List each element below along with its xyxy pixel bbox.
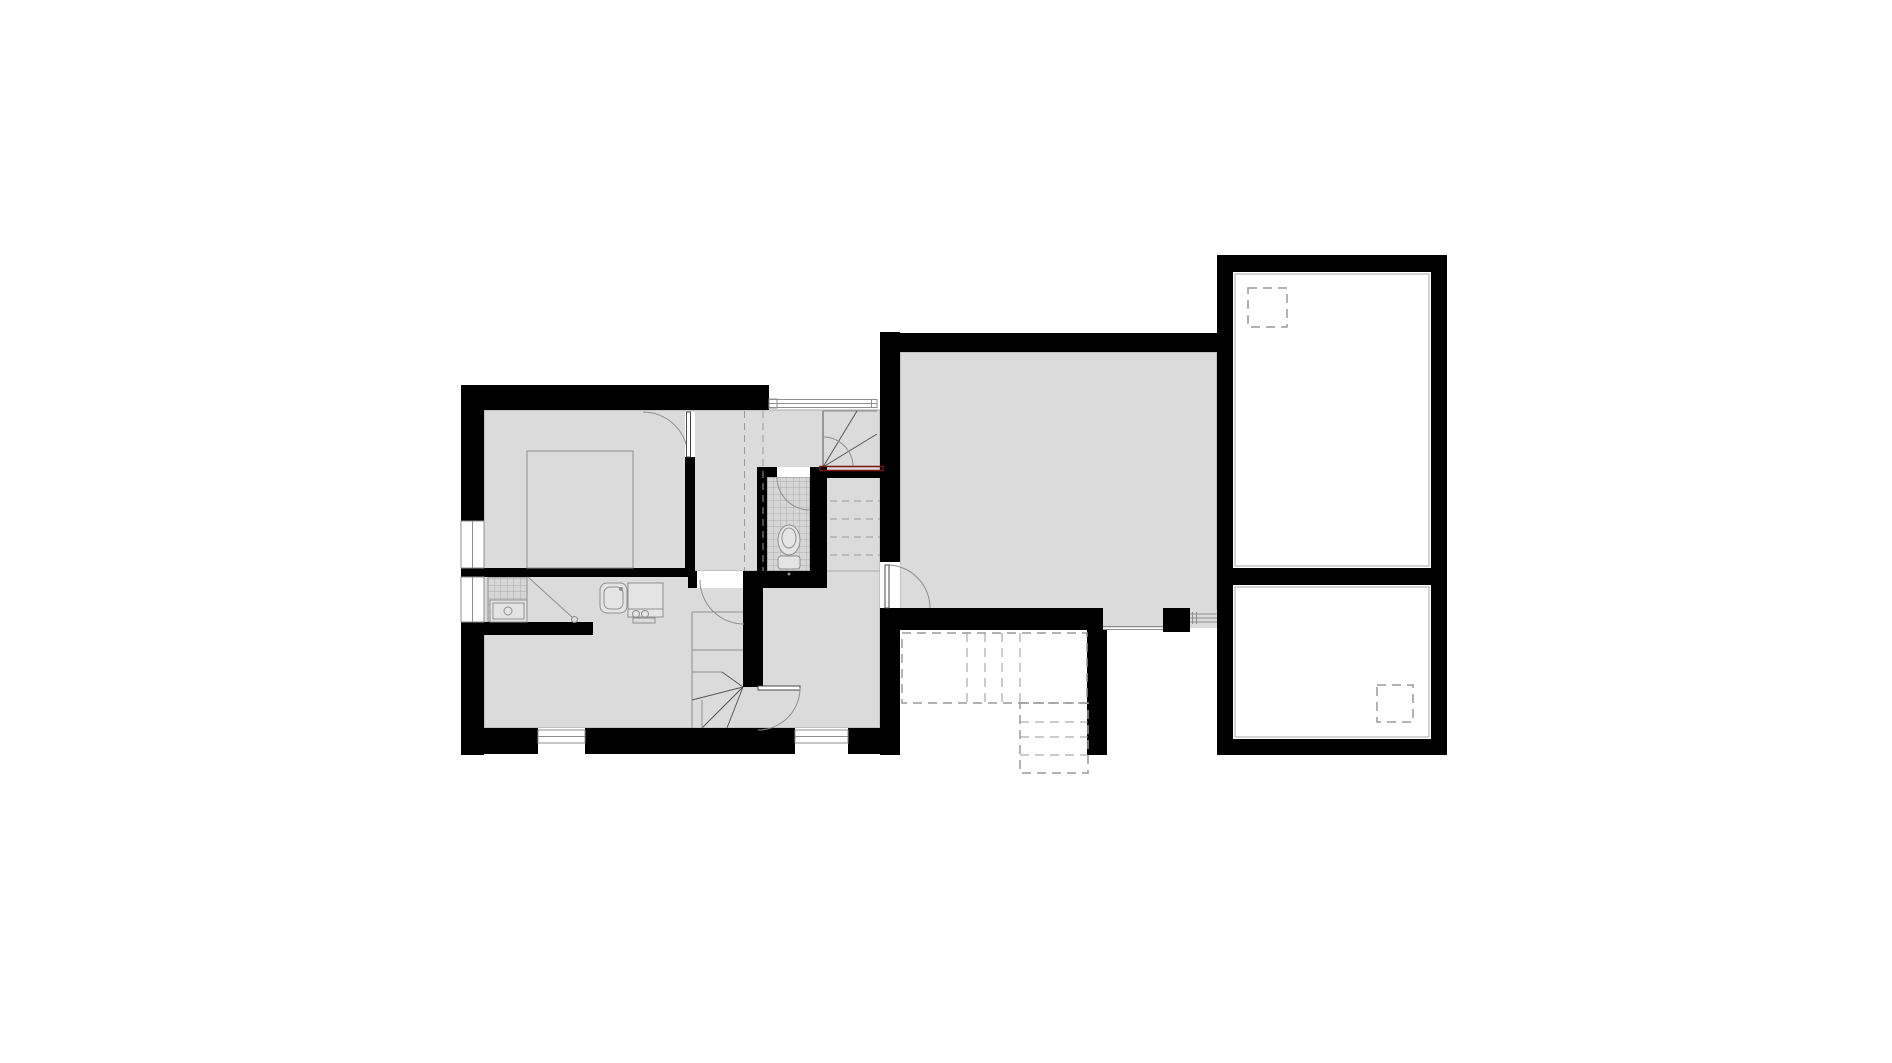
wall-bedroom-east bbox=[685, 457, 695, 568]
wall-hall-south-stub bbox=[688, 571, 697, 588]
south-rooms-floor bbox=[484, 571, 880, 728]
wall-west-mid bbox=[461, 568, 484, 577]
washbasin-faucet bbox=[619, 587, 623, 591]
wc-door-opening bbox=[777, 467, 810, 477]
wall-annex-east bbox=[1431, 255, 1447, 755]
wall-south-mid bbox=[585, 728, 795, 754]
annex-top-room-outline bbox=[1235, 274, 1429, 566]
wall-bedroom-south bbox=[484, 568, 695, 577]
wall-stair-north bbox=[823, 471, 883, 478]
terrace-future-stair-upper bbox=[902, 633, 1087, 703]
toilet-bowl bbox=[778, 525, 800, 555]
wall-bath-partition bbox=[483, 622, 593, 635]
wall-living-north bbox=[880, 333, 1233, 352]
hall-south-door-opening bbox=[697, 571, 743, 588]
wall-annex-divider bbox=[1233, 568, 1431, 585]
living-room-floor bbox=[900, 352, 1217, 610]
south-window-2-opening bbox=[795, 728, 848, 754]
wall-wc-east bbox=[810, 467, 827, 583]
floorplan-drawing bbox=[0, 0, 1892, 1063]
wall-terrace-east bbox=[1087, 630, 1107, 755]
wall-under-stair bbox=[743, 571, 763, 687]
wall-annex-north bbox=[1217, 255, 1447, 272]
wall-annex-south bbox=[1217, 739, 1447, 755]
terrace-future-stair-lower bbox=[1020, 703, 1088, 773]
wall-south-left bbox=[461, 728, 538, 754]
bedroom-door-leaf bbox=[687, 412, 691, 457]
stair-door-leaf bbox=[758, 686, 800, 690]
annex-bottom-dashed-feature bbox=[1377, 685, 1413, 722]
wall-wc-south bbox=[757, 571, 827, 588]
living-door-leaf bbox=[885, 565, 889, 608]
south-window-1-opening bbox=[538, 728, 585, 754]
terrace-pier bbox=[1163, 608, 1190, 632]
annex-bottom-room-outline bbox=[1235, 587, 1429, 737]
wall-wc-west bbox=[757, 467, 767, 583]
wall-living-south bbox=[880, 608, 1103, 630]
wall-annex-west bbox=[1217, 255, 1233, 755]
annex-top-dashed-feature bbox=[1248, 288, 1287, 327]
toilet-flush-dot bbox=[788, 573, 791, 576]
toilet-tank bbox=[778, 556, 800, 569]
wall-living-west-lower bbox=[880, 608, 900, 755]
wall-north bbox=[461, 385, 769, 410]
floorplan-sheet bbox=[0, 0, 1892, 1063]
wall-living-west-upper bbox=[880, 332, 900, 562]
living-door-opening bbox=[880, 562, 900, 608]
